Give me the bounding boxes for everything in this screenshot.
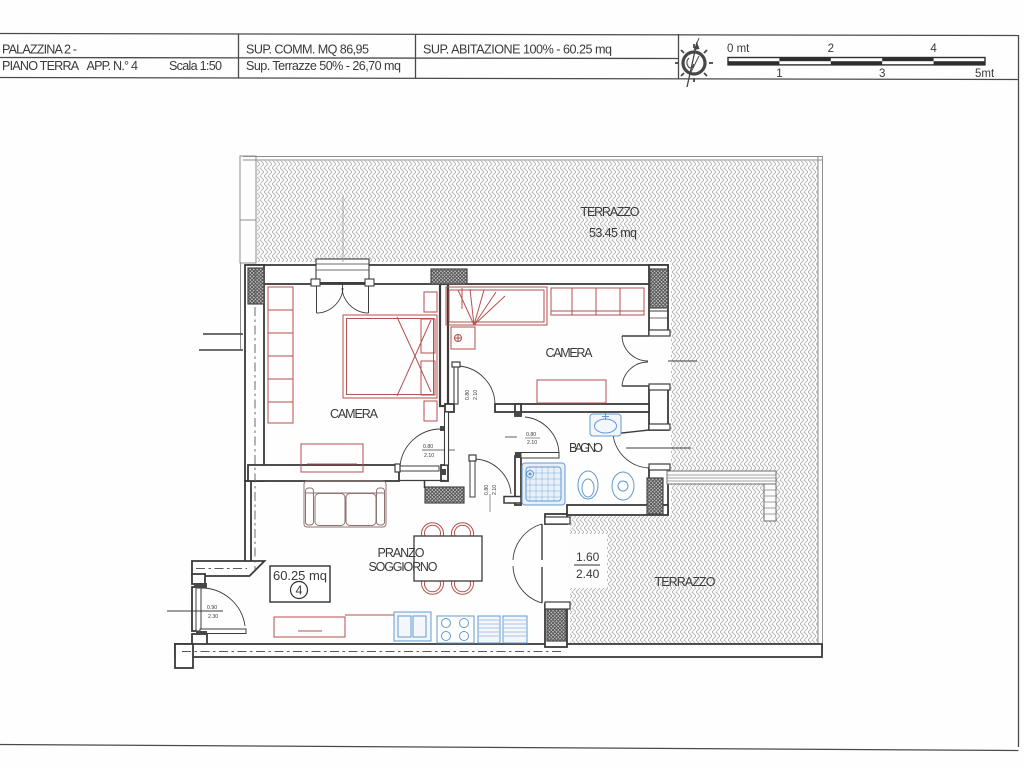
svg-text:2.10: 2.10	[473, 390, 479, 400]
svg-text:1: 1	[776, 68, 782, 80]
svg-text:0 mt: 0 mt	[727, 43, 750, 55]
svg-text:53.45 mq: 53.45 mq	[589, 226, 637, 240]
svg-text:TERRAZZO: TERRAZZO	[581, 205, 640, 219]
svg-text:0.90: 0.90	[207, 605, 217, 611]
svg-text:3: 3	[879, 68, 885, 80]
svg-text:0.80: 0.80	[423, 444, 433, 450]
svg-text:1.60: 1.60	[576, 550, 600, 564]
svg-text:2.30: 2.30	[208, 614, 218, 620]
svg-text:2: 2	[828, 43, 834, 55]
svg-text:BAGNO: BAGNO	[569, 441, 603, 455]
svg-text:PIANO TERRA APP. N.° 4: PIANO TERRA APP. N.° 4	[2, 59, 138, 73]
svg-text:0.80: 0.80	[465, 390, 471, 400]
svg-text:4: 4	[296, 584, 303, 598]
svg-text:2.10: 2.10	[527, 440, 537, 446]
svg-text:SUP. COMM. MQ 86,95: SUP. COMM. MQ 86,95	[246, 43, 369, 57]
svg-text:SUP. ABITAZIONE 100% - 60.25 m: SUP. ABITAZIONE 100% - 60.25 mq	[423, 43, 612, 57]
svg-text:0.80: 0.80	[484, 485, 490, 495]
svg-text:0.80: 0.80	[526, 432, 536, 438]
svg-text:PRANZO: PRANZO	[378, 546, 425, 560]
svg-text:Sup. Terrazze 50% - 26,70 mq: Sup. Terrazze 50% - 26,70 mq	[246, 59, 401, 73]
svg-text:4: 4	[930, 43, 937, 55]
svg-text:2.10: 2.10	[424, 453, 434, 459]
svg-text:CAMERA: CAMERA	[330, 407, 379, 421]
svg-text:SOGGIORNO: SOGGIORNO	[369, 560, 438, 574]
svg-text:5mt: 5mt	[975, 68, 995, 80]
svg-text:2.10: 2.10	[492, 485, 498, 495]
svg-text:PALAZZINA 2 -: PALAZZINA 2 -	[2, 43, 77, 57]
svg-text:2.40: 2.40	[576, 567, 600, 581]
svg-text:60.25 mq: 60.25 mq	[273, 568, 327, 583]
svg-text:Scala 1:50: Scala 1:50	[169, 59, 222, 73]
svg-text:TERRAZZO: TERRAZZO	[655, 575, 716, 589]
svg-text:CAMERA: CAMERA	[546, 346, 594, 360]
